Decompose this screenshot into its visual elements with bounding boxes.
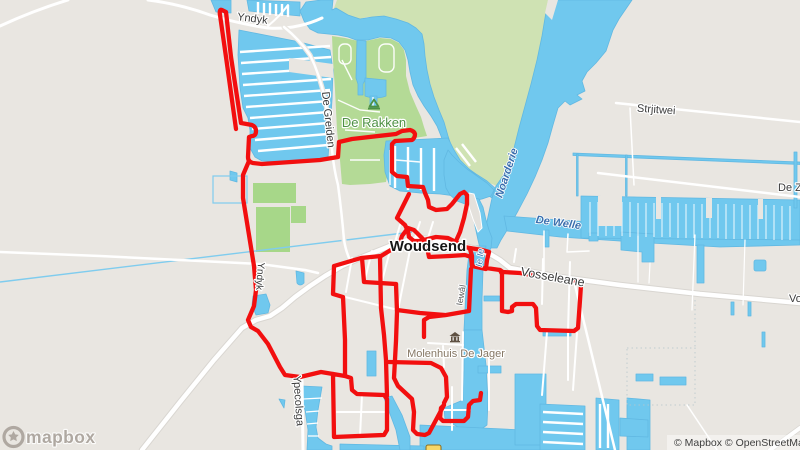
svg-text:Vosseleane: Vosseleane — [520, 265, 586, 290]
svg-text:Molenhuis De Jager: Molenhuis De Jager — [407, 348, 505, 360]
svg-text:© Mapbox © OpenStreetMap: © Mapbox © OpenStreetMap — [674, 437, 800, 449]
svg-text:Woudsend: Woudsend — [390, 238, 466, 255]
svg-text:mapbox: mapbox — [26, 427, 96, 447]
svg-text:Vosselaene: Vosselaene — [789, 293, 800, 305]
svg-text:Ypecolsga: Ypecolsga — [290, 375, 306, 427]
svg-text:Ie Ie: Ie Ie — [474, 248, 487, 268]
svg-text:De Rakken: De Rakken — [342, 115, 406, 130]
svg-text:De Zwette: De Zwette — [778, 182, 800, 194]
svg-text:Strjitwei: Strjitwei — [637, 103, 676, 118]
svg-text:Yndyk: Yndyk — [253, 262, 266, 291]
